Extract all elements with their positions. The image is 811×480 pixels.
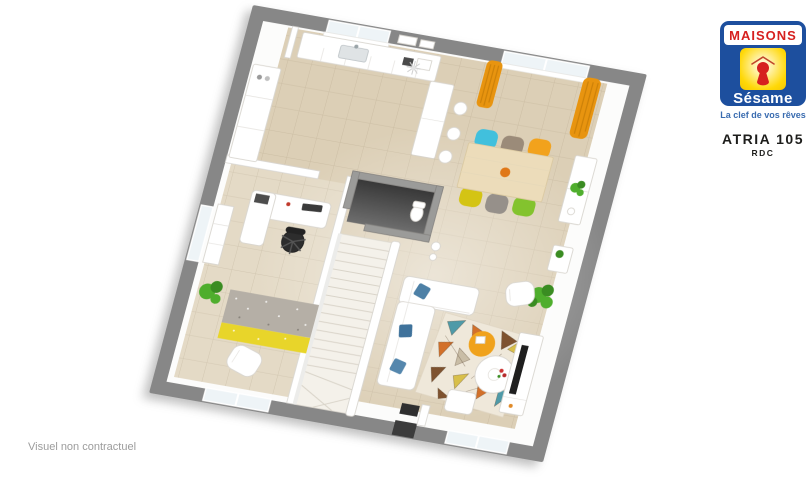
logo-sesame-text: Sésame: [720, 90, 806, 107]
keyhole-icon: [740, 48, 786, 90]
white-ottoman: [444, 389, 477, 415]
armchair: [505, 280, 535, 307]
floor-label: RDC: [703, 148, 811, 158]
pouf-books: [476, 337, 486, 344]
brand-tagline: La clef de vos rêves: [708, 110, 811, 120]
model-name: ATRIA 105: [703, 131, 811, 147]
maisons-sesame-logo: MAISONS Sésame: [720, 21, 806, 106]
floorplan-svg: [149, 5, 647, 462]
disclaimer-text: Visuel non contractuel: [28, 441, 136, 453]
logo-maisons-text: MAISONS: [724, 25, 802, 45]
brand-block: MAISONS Sésame La clef de vos rêves: [708, 21, 811, 120]
page: { "branding": { "brand_top": "MAISONS", …: [0, 0, 811, 480]
model-block: ATRIA 105 RDC: [703, 131, 811, 158]
logo-keyhole-tile: [740, 48, 786, 90]
floorplan-3d: [149, 5, 647, 462]
